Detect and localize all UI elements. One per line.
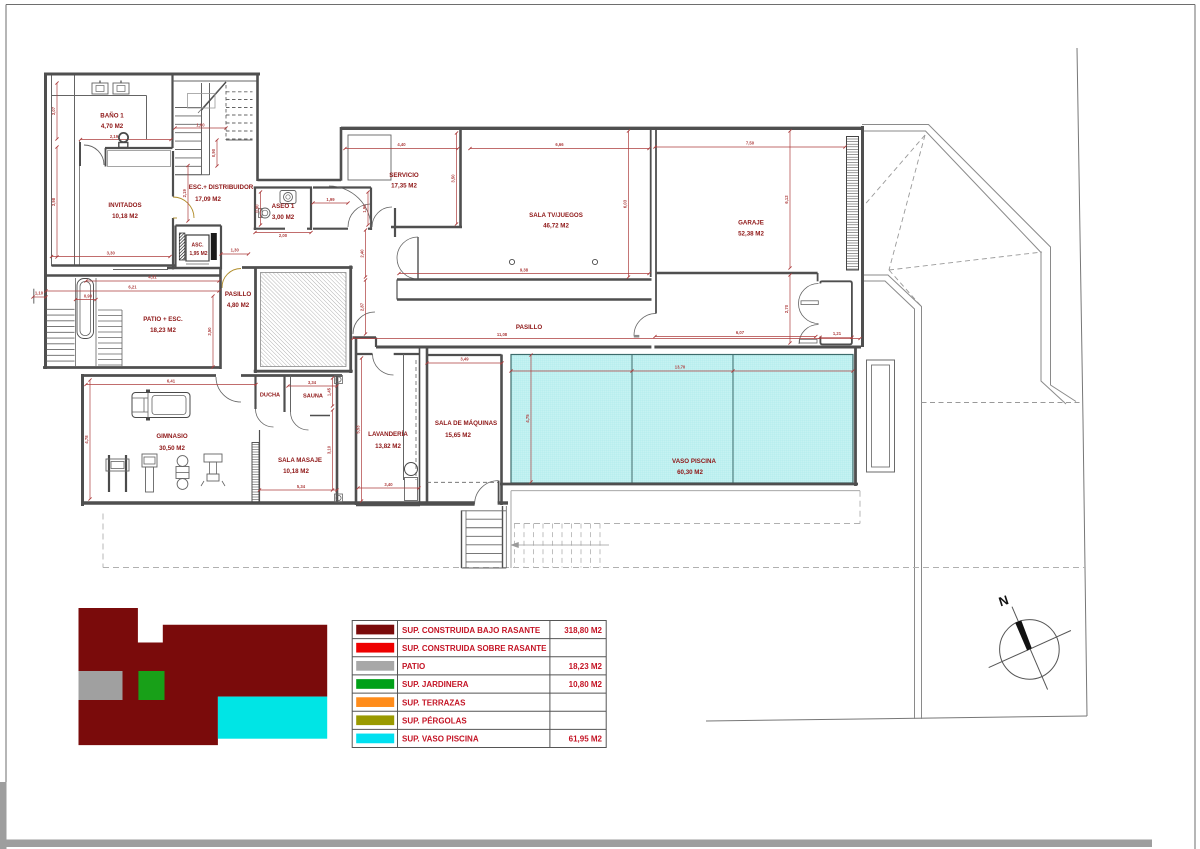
svg-text:SUP. VASO PISCINA: SUP. VASO PISCINA [402, 735, 479, 744]
svg-text:60,30 M2: 60,30 M2 [677, 469, 703, 476]
svg-text:61,95 M2: 61,95 M2 [569, 735, 603, 744]
svg-text:2,19: 2,19 [110, 134, 119, 139]
svg-text:ASEO 1: ASEO 1 [272, 203, 295, 210]
svg-text:2,00: 2,00 [279, 233, 288, 238]
svg-text:15,65 M2: 15,65 M2 [445, 432, 471, 439]
svg-text:SUP. PÉRGOLAS: SUP. PÉRGOLAS [402, 717, 467, 726]
svg-text:PATIO: PATIO [402, 662, 425, 671]
svg-text:10,80 M2: 10,80 M2 [569, 680, 603, 689]
svg-text:17,09 M2: 17,09 M2 [195, 196, 221, 203]
svg-text:5,53: 5,53 [356, 425, 361, 434]
svg-text:SERVICIO: SERVICIO [389, 172, 419, 179]
svg-text:ESC.+ DISTRIBUIDOR: ESC.+ DISTRIBUIDOR [189, 184, 254, 191]
svg-text:4,78: 4,78 [84, 435, 89, 444]
svg-text:SUP. CONSTRUIDA BAJO RASANTE: SUP. CONSTRUIDA BAJO RASANTE [402, 626, 541, 635]
svg-text:2,40: 2,40 [360, 249, 365, 258]
svg-text:3,07: 3,07 [51, 106, 56, 115]
svg-text:4,75: 4,75 [525, 414, 530, 423]
svg-text:1,45: 1,45 [327, 387, 332, 396]
svg-text:ASC.: ASC. [192, 243, 205, 249]
svg-text:SUP. JARDINERA: SUP. JARDINERA [402, 680, 469, 689]
svg-text:17,35 M2: 17,35 M2 [391, 183, 417, 190]
svg-text:2,19: 2,19 [182, 189, 187, 198]
svg-text:6,03: 6,03 [623, 199, 628, 208]
svg-text:9,38: 9,38 [520, 268, 529, 273]
svg-text:INVITADOS: INVITADOS [108, 202, 141, 209]
svg-text:3,34: 3,34 [308, 380, 317, 385]
svg-text:4,80 M2: 4,80 M2 [227, 302, 250, 309]
svg-text:0,90: 0,90 [84, 294, 93, 299]
svg-text:6,41: 6,41 [167, 379, 176, 384]
svg-text:3,50: 3,50 [451, 174, 456, 183]
svg-text:1,90: 1,90 [362, 204, 367, 213]
svg-text:4,31: 4,31 [148, 275, 157, 280]
svg-text:30,50 M2: 30,50 M2 [159, 445, 185, 452]
svg-text:SALA TV/JUEGOS: SALA TV/JUEGOS [529, 212, 583, 219]
svg-text:GARAJE: GARAJE [738, 220, 764, 227]
svg-text:GIMNASIO: GIMNASIO [156, 433, 187, 440]
svg-text:PASILLO: PASILLO [225, 291, 252, 298]
svg-text:3,00 M2: 3,00 M2 [272, 214, 295, 221]
svg-text:52,38 M2: 52,38 M2 [738, 231, 764, 238]
svg-text:6,66: 6,66 [555, 142, 564, 147]
svg-text:3,10: 3,10 [327, 445, 332, 454]
svg-text:1,10: 1,10 [35, 291, 44, 296]
svg-text:3,30: 3,30 [107, 251, 116, 256]
svg-text:1,00: 1,00 [196, 123, 205, 128]
svg-text:DUCHA: DUCHA [260, 393, 280, 399]
svg-text:4,70 M2: 4,70 M2 [101, 123, 124, 130]
svg-text:0,90: 0,90 [255, 204, 260, 213]
svg-text:13,70: 13,70 [675, 365, 686, 370]
svg-text:3,98: 3,98 [51, 197, 56, 206]
svg-text:LAVANDERÍA: LAVANDERÍA [368, 430, 408, 438]
svg-text:2,70: 2,70 [784, 304, 789, 313]
svg-text:BAÑO 1: BAÑO 1 [100, 113, 124, 120]
svg-text:SALA DE MÁQUINAS: SALA DE MÁQUINAS [435, 420, 497, 427]
svg-text:SUP. CONSTRUIDA SOBRE RASANTE: SUP. CONSTRUIDA SOBRE RASANTE [402, 644, 547, 653]
svg-text:18,23 M2: 18,23 M2 [569, 662, 603, 671]
svg-text:2,87: 2,87 [360, 302, 365, 311]
svg-text:SALA MASAJE: SALA MASAJE [278, 457, 322, 464]
svg-text:7,50: 7,50 [746, 141, 755, 146]
svg-text:6,21: 6,21 [128, 285, 137, 290]
svg-text:13,82 M2: 13,82 M2 [375, 443, 401, 450]
svg-text:3,50: 3,50 [207, 327, 212, 336]
svg-text:318,80 M2: 318,80 M2 [564, 626, 602, 635]
svg-text:5,34: 5,34 [297, 484, 306, 489]
svg-text:46,72 M2: 46,72 M2 [543, 223, 569, 230]
svg-text:SUP. TERRAZAS: SUP. TERRAZAS [402, 698, 466, 707]
svg-text:VASO PISCINA: VASO PISCINA [672, 458, 716, 465]
svg-text:6,07: 6,07 [736, 330, 745, 335]
svg-text:3,49: 3,49 [460, 357, 469, 362]
svg-text:4,40: 4,40 [397, 142, 406, 147]
svg-text:1,95 M2: 1,95 M2 [189, 251, 207, 257]
svg-text:0,90: 0,90 [211, 148, 216, 157]
svg-text:1,99: 1,99 [326, 197, 335, 202]
svg-text:SAUNA: SAUNA [303, 394, 323, 400]
svg-text:10,18 M2: 10,18 M2 [112, 213, 138, 220]
svg-text:10,18 M2: 10,18 M2 [283, 468, 309, 475]
svg-text:PASILLO: PASILLO [516, 324, 543, 331]
svg-text:18,23 M2: 18,23 M2 [150, 327, 176, 334]
svg-text:11,08: 11,08 [497, 332, 508, 337]
svg-text:PATIO + ESC.: PATIO + ESC. [143, 316, 183, 323]
svg-text:1,30: 1,30 [231, 248, 240, 253]
svg-text:3,40: 3,40 [384, 482, 393, 487]
svg-text:1,21: 1,21 [833, 331, 842, 336]
svg-text:6,13: 6,13 [784, 195, 789, 204]
